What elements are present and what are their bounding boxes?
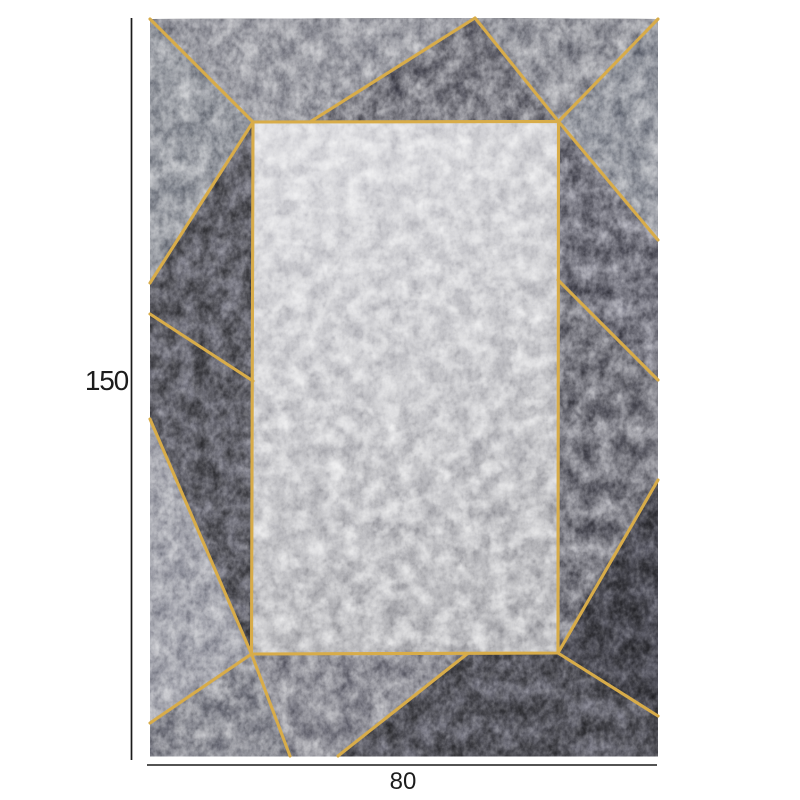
- svg-text:80: 80: [390, 768, 417, 795]
- svg-text:150: 150: [85, 365, 129, 396]
